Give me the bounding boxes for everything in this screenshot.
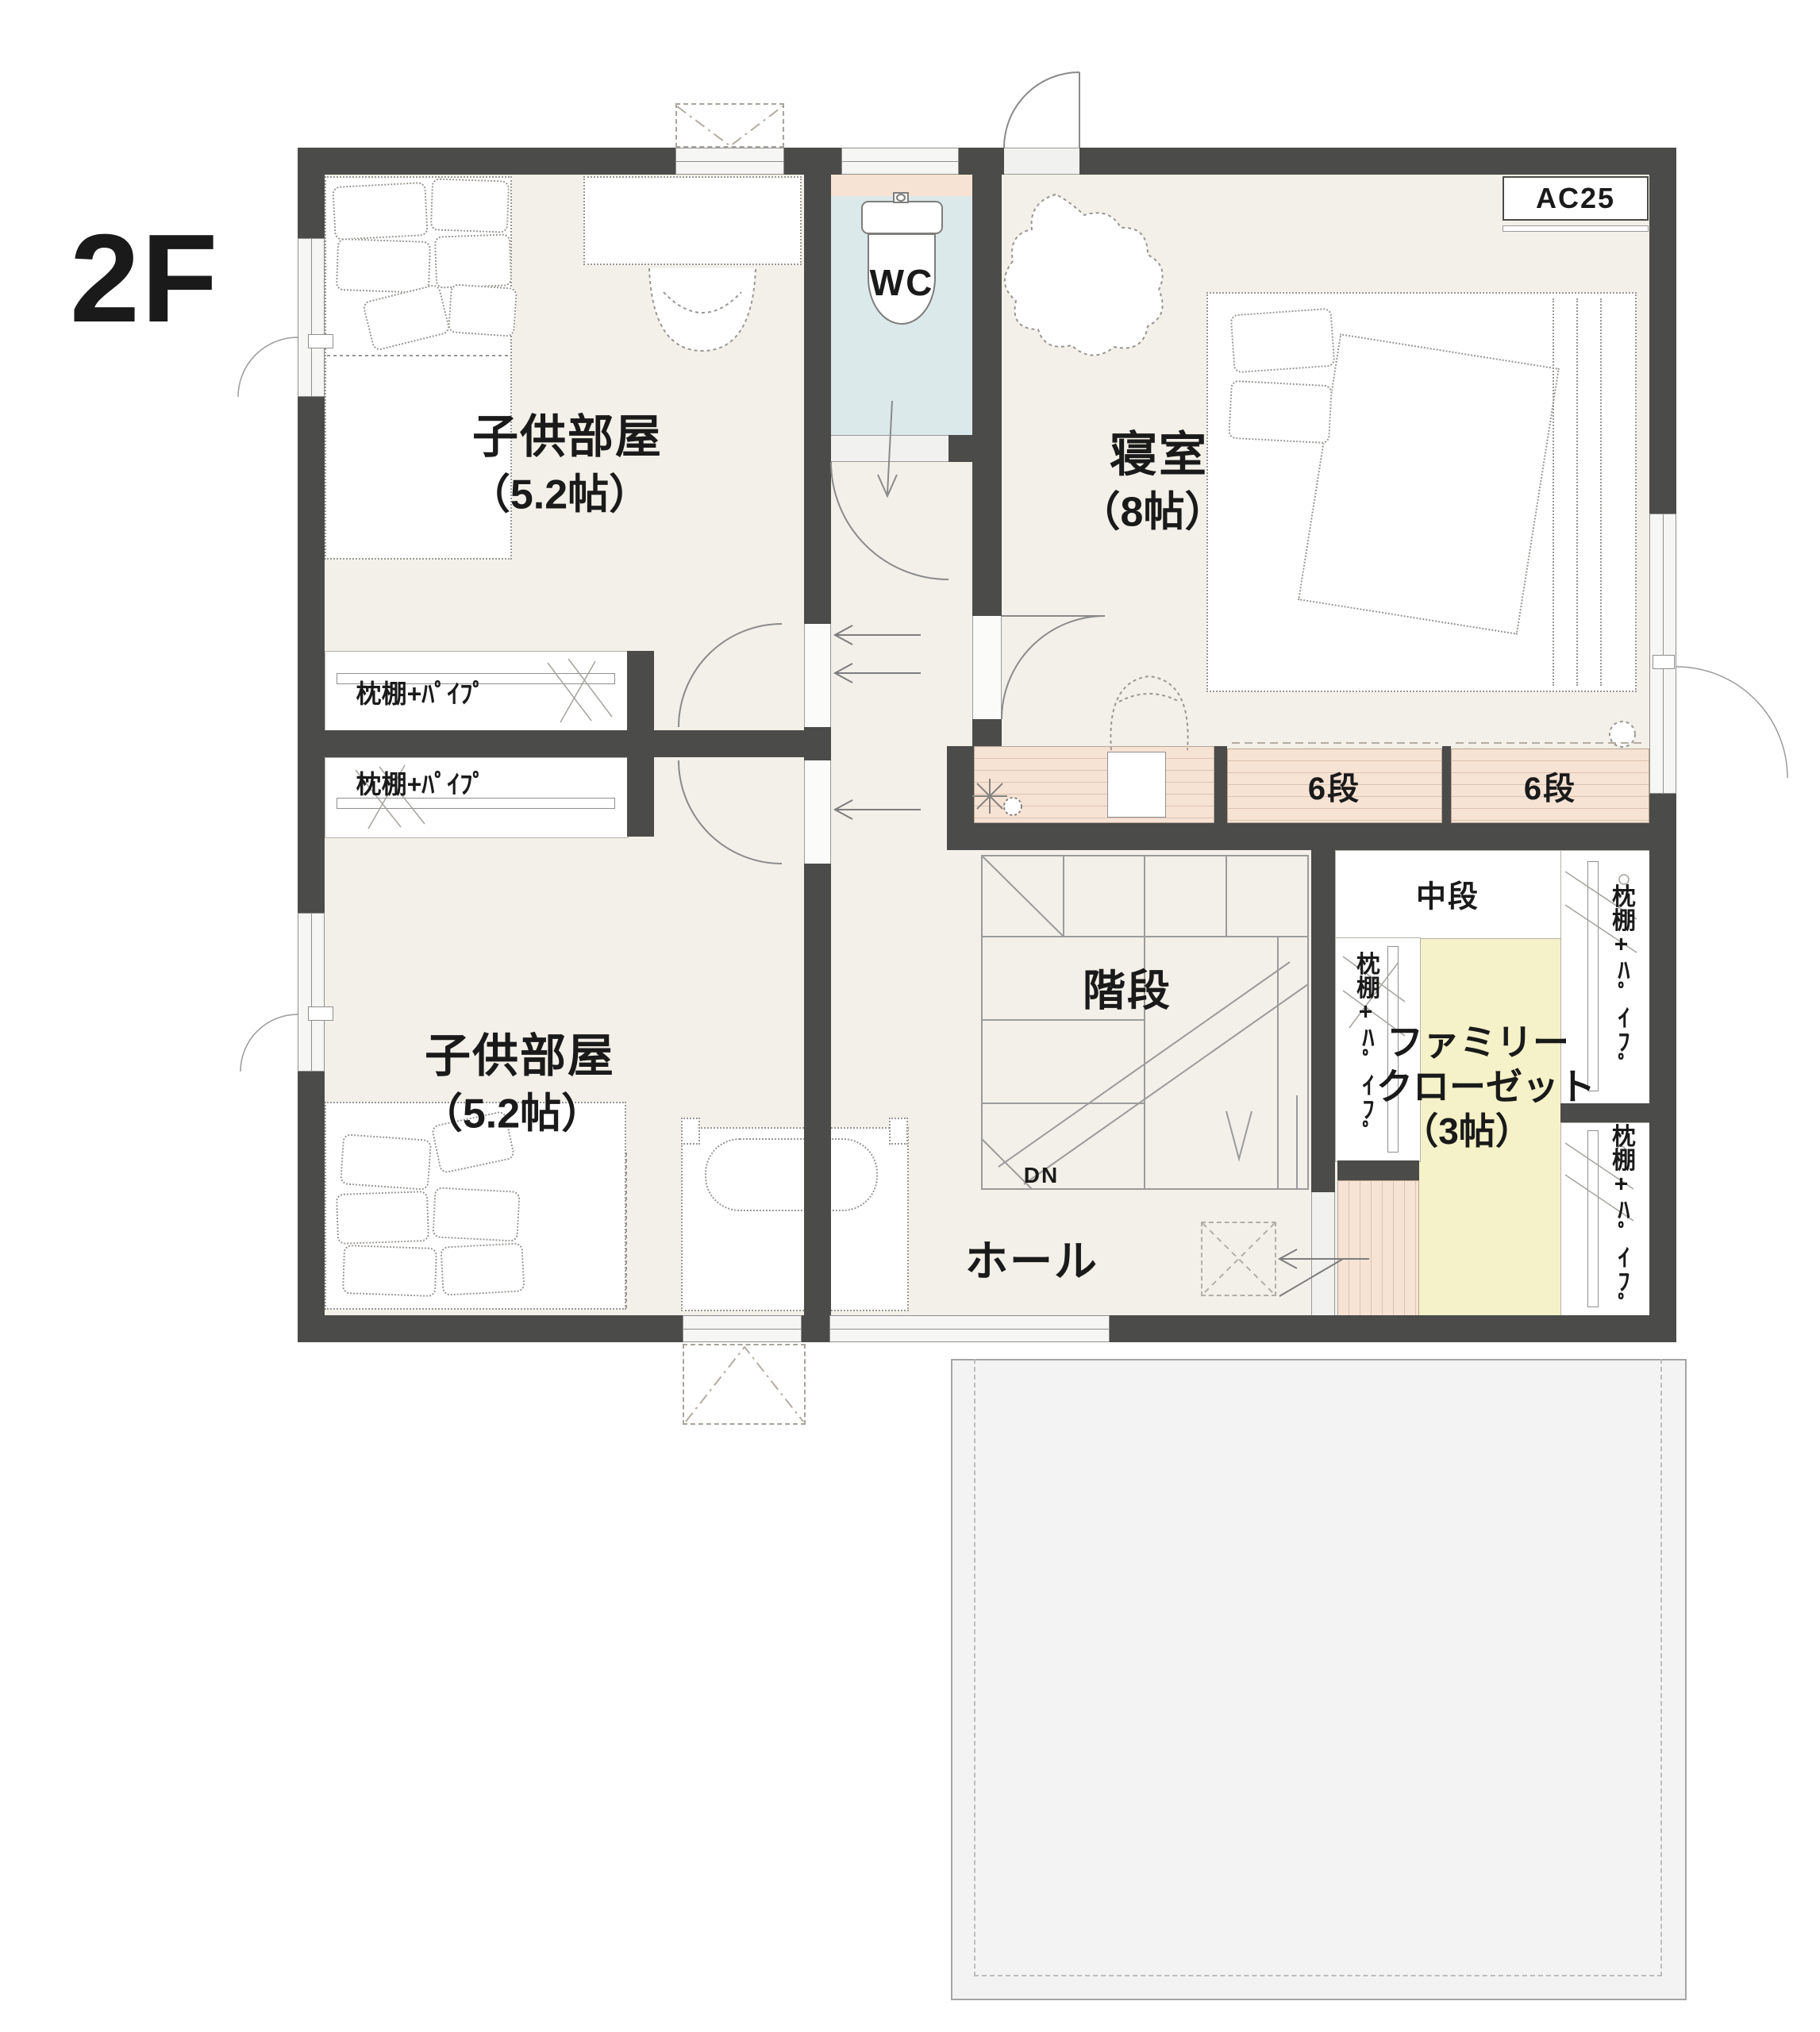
wall-bedroom-south <box>974 823 1649 850</box>
casement-arc-kids1 <box>238 337 298 397</box>
kids1-pillow <box>434 233 512 288</box>
casement-arc-kids2 <box>240 1014 298 1072</box>
six-step-label-2: 6段 <box>1524 763 1576 809</box>
closet-entrance-mat <box>1337 1180 1419 1317</box>
eave-box-top <box>675 103 784 148</box>
window-kids1-left <box>298 238 325 397</box>
wall-rooms-hall <box>804 864 831 1315</box>
shelf-pipe-label-closet-left: 枕棚+ﾊﾟｲﾌﾟ <box>1348 952 1383 1145</box>
shelf-pipe-label-closet-right-lower: 枕棚+ﾊﾟｲﾌﾟ <box>1603 1124 1638 1317</box>
kids2-pillow <box>340 1133 432 1191</box>
kids1-pillow <box>448 283 518 337</box>
wall-right <box>1649 148 1676 514</box>
ac-label: AC25 <box>1536 182 1615 215</box>
door-gap-wc <box>831 435 948 462</box>
wall-mat-stub <box>1337 1160 1419 1180</box>
kids2-pillow <box>432 1187 520 1242</box>
bedroom-size: （8帖） <box>1079 479 1226 538</box>
stairs-dn-label: DN <box>1024 1163 1059 1188</box>
wall-closet-stub <box>627 651 654 837</box>
bedroom-counter <box>974 746 1214 823</box>
door-leaf-kids1 <box>804 624 831 727</box>
wall-left <box>298 1072 325 1342</box>
bedroom-blanket <box>1298 333 1560 635</box>
kids2-pillow <box>440 1242 525 1295</box>
wall-bottom <box>802 1315 829 1342</box>
kids2-room-label: 子供部屋 <box>425 1018 615 1085</box>
stairs-label: 階段 <box>1083 956 1172 1018</box>
door-gap-bedroom-top <box>1004 148 1079 175</box>
closet-right-bar-lower <box>1587 1130 1599 1307</box>
kids1-pillow <box>430 178 510 233</box>
kids2-bed-right-pillow <box>705 1138 878 1211</box>
wall-top <box>298 148 675 175</box>
bedroom-bed-headboard-line <box>1553 298 1554 686</box>
kids2-bed-right-post <box>681 1118 700 1145</box>
shelf-pipe-label-kids2: 枕棚+ﾊﾟｲﾌﾟ <box>356 764 486 801</box>
shelf-pipe-label-kids1: 枕棚+ﾊﾟｲﾌﾟ <box>356 674 486 710</box>
hall-label: ホール <box>965 1226 1099 1289</box>
wall-right <box>1649 794 1676 1342</box>
wall-wc-bedroom <box>972 719 1002 746</box>
bedroom-label: 寝室 <box>1110 417 1208 486</box>
window-wc-top <box>841 148 959 175</box>
wall-kids-divider <box>298 730 831 757</box>
bedroom-counter-desk <box>1107 752 1166 818</box>
wall-bottom <box>298 1315 683 1342</box>
wc-shelf-strip <box>831 173 972 196</box>
bedroom-pillow <box>1228 380 1333 444</box>
floor-title: 2F <box>70 216 219 341</box>
bedroom-bed-headboard-line <box>1576 298 1578 686</box>
window-latch <box>1653 655 1675 669</box>
wall-left <box>298 397 325 913</box>
floor-plan-2f: 2F <box>0 0 1820 2032</box>
passage-hall-closet <box>1311 1192 1335 1315</box>
wall-left <box>298 148 325 238</box>
wall-counter-stub <box>947 746 974 850</box>
kids1-desk <box>583 176 802 265</box>
family-closet-label-3: （3帖） <box>1402 1103 1532 1155</box>
wall-wc-bedroom <box>972 148 1002 616</box>
door-leaf-kids2 <box>804 760 831 864</box>
kids2-room-size: （5.2帖） <box>421 1080 602 1140</box>
door-arc-bedroom-top <box>1004 72 1079 148</box>
kids1-room-size: （5.2帖） <box>469 461 650 521</box>
window-kids1-top <box>675 148 784 175</box>
eave-box-bottom <box>683 1344 806 1425</box>
kids2-pillow <box>336 1191 429 1245</box>
casement-arc-bedroom <box>1676 667 1787 778</box>
kids2-bed-right-post <box>889 1118 908 1145</box>
attic-hatch <box>1201 1222 1276 1296</box>
door-gap-bedroom-hall <box>972 616 1002 719</box>
wall-stairs-closet <box>1311 850 1335 1192</box>
window-hall-bottom <box>829 1315 1110 1342</box>
middle-shelf-label: 中段 <box>1416 872 1479 916</box>
kids1-pillow <box>336 238 431 294</box>
wall-shelf-pier <box>1442 746 1451 823</box>
kids2-pillow <box>342 1245 437 1297</box>
window-latch <box>308 334 333 348</box>
window-bedroom-right <box>1649 514 1676 794</box>
closet-right-bar-upper <box>1587 861 1599 1091</box>
bedroom-pillow <box>1230 308 1336 374</box>
wall-shelf-pier <box>1214 746 1227 823</box>
kids1-room-label: 子供部屋 <box>472 399 663 466</box>
toilet-tank <box>861 201 943 234</box>
bedroom-bed-headboard-line <box>1600 298 1602 686</box>
wall-bottom <box>1110 1315 1676 1342</box>
six-step-label-1: 6段 <box>1308 763 1360 809</box>
wall-top <box>1079 148 1676 175</box>
ac-unit-sill <box>1503 225 1649 232</box>
kids1-pillow <box>332 182 428 241</box>
balcony-roof-inner-line <box>974 1359 1662 1976</box>
window-kids2-bottom <box>683 1315 802 1342</box>
wc-label: WC <box>870 261 934 304</box>
window-kids2-left <box>298 913 325 1072</box>
wall-rooms-hall <box>804 148 831 624</box>
shelf-pipe-label-closet-right-upper: 枕棚+ﾊﾟｲﾌﾟ <box>1603 884 1638 1077</box>
window-latch <box>308 1006 333 1021</box>
wall-wc-pier <box>948 435 972 462</box>
